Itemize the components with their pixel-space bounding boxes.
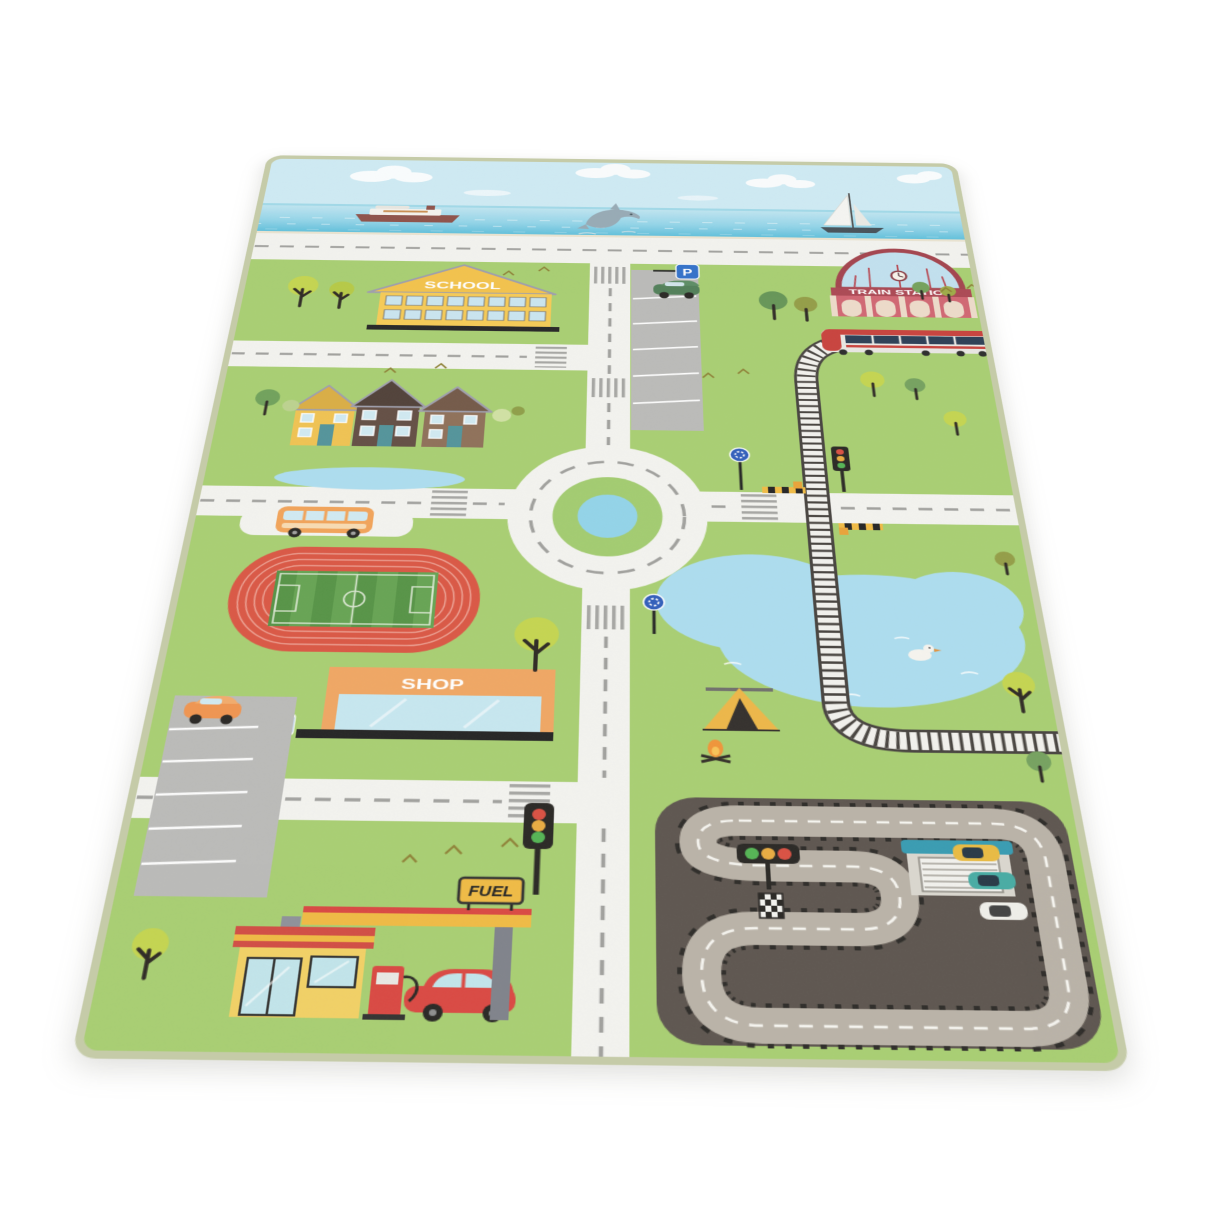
product-photo: SCHOOL P	[0, 0, 1214, 1214]
play-rug: SCHOOL P	[71, 155, 1131, 1071]
